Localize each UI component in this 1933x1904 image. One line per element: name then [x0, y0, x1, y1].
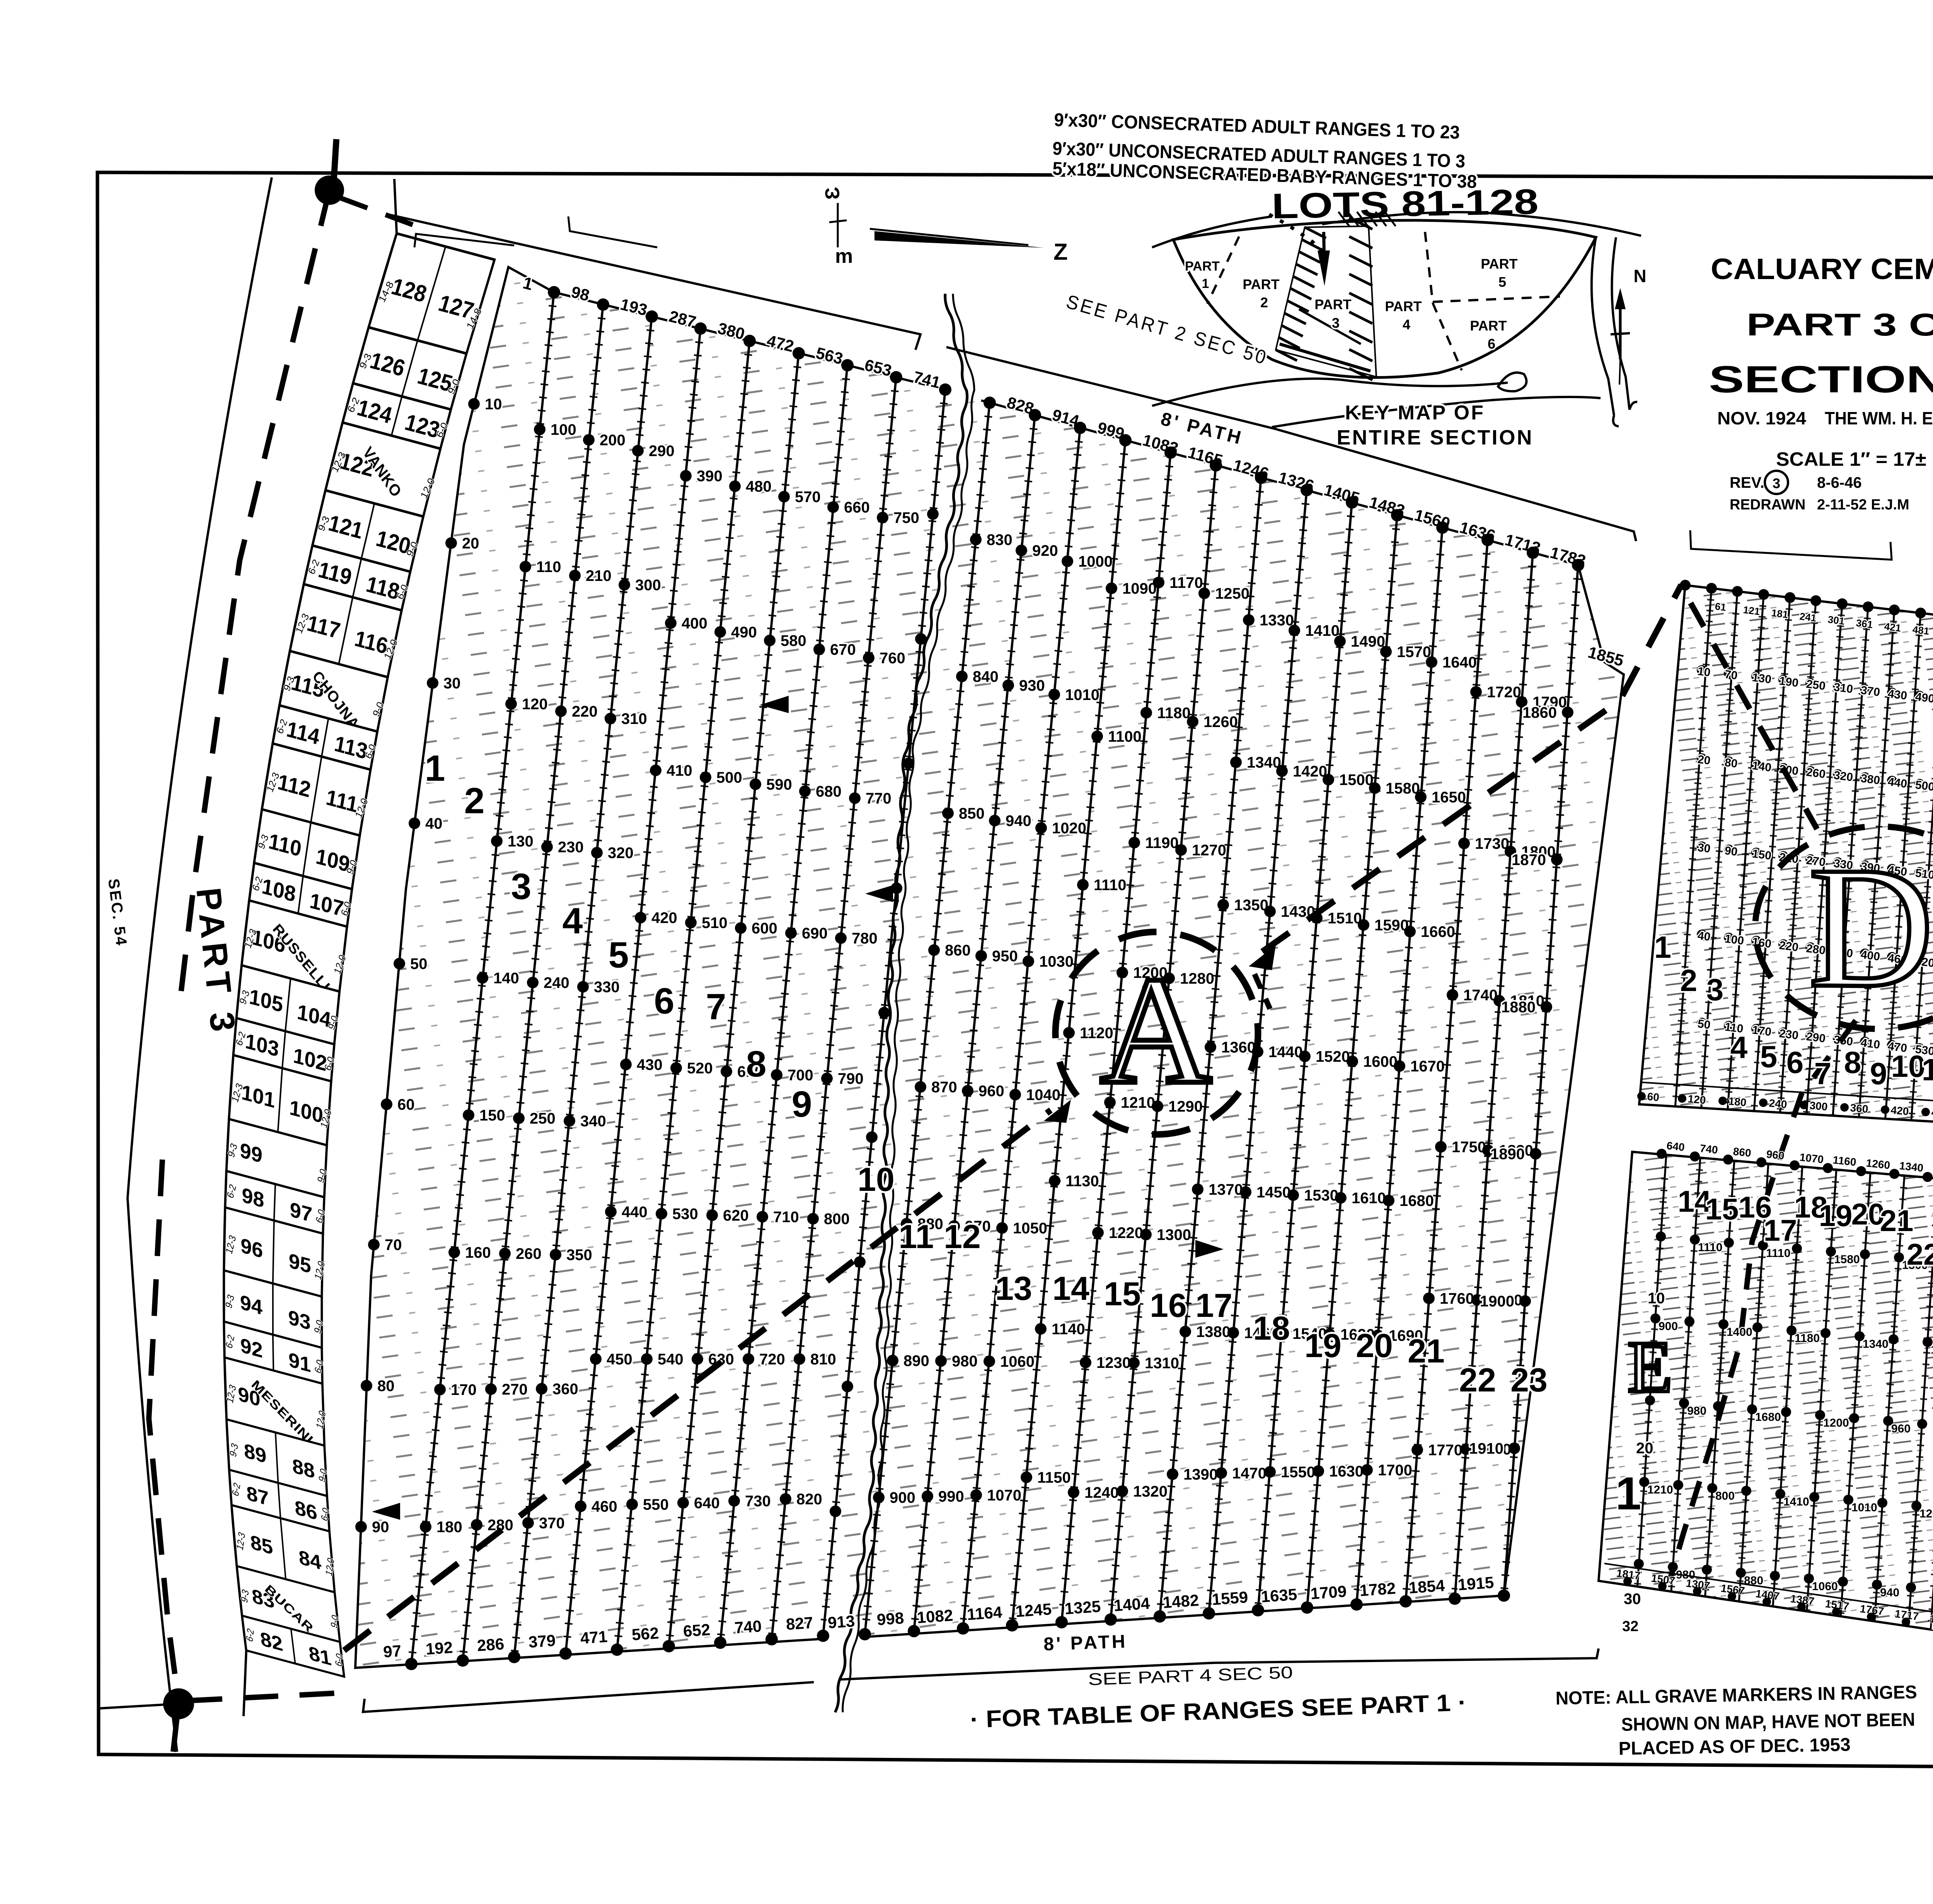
svg-text:11: 11 [1922, 1052, 1933, 1087]
svg-text:100: 100 [1724, 932, 1745, 947]
svg-text:30: 30 [1624, 1591, 1641, 1608]
svg-text:550: 550 [643, 1496, 669, 1513]
svg-text:5: 5 [609, 935, 629, 976]
svg-text:1210: 1210 [1647, 1483, 1673, 1496]
svg-text:REDRAWN: REDRAWN [1730, 497, 1805, 513]
svg-text:750: 750 [893, 509, 919, 526]
svg-text:420: 420 [1890, 1104, 1909, 1117]
svg-text:250: 250 [1805, 678, 1826, 693]
svg-text:520: 520 [687, 1060, 713, 1077]
svg-text:250: 250 [530, 1110, 556, 1127]
svg-text:PART 3 OF: PART 3 OF [1747, 307, 1933, 342]
svg-text:300: 300 [635, 577, 661, 594]
svg-text:1060: 1060 [1000, 1353, 1035, 1370]
svg-text:8' PATH: 8' PATH [1043, 1631, 1128, 1655]
svg-text:980: 980 [1687, 1405, 1706, 1417]
svg-text:170: 170 [451, 1381, 477, 1398]
svg-text:620: 620 [723, 1207, 749, 1224]
svg-text:REV.: REV. [1730, 474, 1764, 491]
svg-text:361: 361 [1855, 617, 1873, 630]
svg-text:6: 6 [1488, 336, 1495, 352]
svg-text:1200: 1200 [1919, 1507, 1933, 1520]
svg-text:340: 340 [580, 1113, 606, 1130]
svg-text:670: 670 [830, 641, 856, 658]
svg-text:1782: 1782 [1359, 1579, 1396, 1599]
svg-text:20: 20 [1356, 1327, 1393, 1364]
svg-text:A: A [1100, 945, 1212, 1116]
svg-text:N: N [1633, 266, 1646, 286]
svg-text:50: 50 [1697, 1017, 1711, 1032]
svg-text:40: 40 [425, 815, 443, 832]
svg-text:1390: 1390 [1183, 1466, 1218, 1483]
svg-text:430: 430 [637, 1056, 663, 1073]
svg-text:1110: 1110 [1698, 1241, 1722, 1254]
svg-text:5: 5 [1760, 1039, 1778, 1074]
svg-text:19: 19 [1304, 1327, 1342, 1364]
svg-text:1: 1 [425, 748, 445, 789]
svg-text:1: 1 [1616, 1468, 1642, 1519]
svg-text:1270: 1270 [1192, 842, 1226, 859]
svg-text:1482: 1482 [1162, 1591, 1199, 1611]
svg-text:1520: 1520 [1316, 1048, 1350, 1065]
svg-text:1070: 1070 [987, 1487, 1021, 1504]
svg-text:5: 5 [1498, 274, 1506, 290]
svg-text:21: 21 [1880, 1204, 1914, 1238]
svg-text:1245: 1245 [1015, 1600, 1052, 1620]
svg-text:480: 480 [746, 478, 772, 495]
svg-text:286: 286 [476, 1635, 505, 1655]
svg-text:300: 300 [1809, 1099, 1828, 1113]
svg-text:1880: 1880 [1501, 999, 1536, 1016]
svg-text:260: 260 [1805, 766, 1826, 781]
svg-text:220: 220 [1778, 939, 1799, 954]
svg-text:1330: 1330 [1260, 612, 1294, 629]
svg-text:1550: 1550 [1281, 1464, 1315, 1481]
svg-text:1559: 1559 [1211, 1588, 1248, 1608]
svg-text:1600: 1600 [1363, 1053, 1398, 1070]
svg-text:1300: 1300 [1157, 1226, 1191, 1243]
svg-text:290: 290 [1805, 1030, 1826, 1045]
svg-text:15: 15 [1104, 1276, 1141, 1313]
svg-text:1070: 1070 [1799, 1151, 1824, 1165]
svg-text:1180: 1180 [1157, 705, 1191, 722]
svg-text:1570: 1570 [1397, 644, 1431, 661]
svg-text:1650: 1650 [1432, 789, 1466, 806]
svg-text:710: 710 [773, 1209, 799, 1226]
svg-text:16: 16 [1150, 1287, 1187, 1324]
svg-text:1854: 1854 [1408, 1576, 1445, 1597]
svg-text:940: 940 [1880, 1586, 1899, 1599]
svg-text:540: 540 [658, 1351, 684, 1368]
svg-text:220: 220 [572, 703, 598, 720]
svg-text:1170: 1170 [1169, 574, 1203, 591]
svg-text:150: 150 [479, 1107, 505, 1124]
svg-text:20: 20 [462, 535, 479, 552]
svg-text:21: 21 [1408, 1333, 1445, 1370]
svg-text:301: 301 [1827, 613, 1845, 627]
svg-text:7: 7 [1814, 1056, 1832, 1091]
svg-text:740: 740 [1699, 1142, 1718, 1156]
svg-text:2: 2 [464, 780, 485, 821]
svg-text:562: 562 [631, 1624, 659, 1644]
svg-text:1340: 1340 [1863, 1338, 1889, 1351]
svg-text:23: 23 [1510, 1362, 1548, 1399]
svg-text:8-6-46: 8-6-46 [1817, 474, 1862, 491]
svg-text:15: 15 [1705, 1192, 1739, 1226]
svg-text:1060: 1060 [1812, 1580, 1838, 1593]
svg-text:80: 80 [377, 1378, 395, 1395]
svg-text:4: 4 [563, 901, 583, 942]
svg-text:6: 6 [1786, 1045, 1804, 1080]
svg-text:720: 720 [759, 1351, 785, 1368]
svg-text:580: 580 [781, 632, 806, 649]
svg-text:998: 998 [876, 1609, 904, 1629]
svg-text:740: 740 [734, 1617, 762, 1637]
svg-text:241: 241 [1799, 610, 1817, 624]
svg-text:640: 640 [1666, 1139, 1685, 1153]
svg-text:1660: 1660 [1421, 923, 1455, 940]
svg-text:260: 260 [516, 1245, 542, 1262]
svg-text:350: 350 [566, 1247, 592, 1264]
svg-text:6: 6 [654, 981, 675, 1022]
svg-text:CALUARY CEMETERY: CALUARY CEMETERY [1711, 253, 1933, 286]
svg-text:1325: 1325 [1064, 1597, 1101, 1618]
svg-text:2-11-52 E.J.M: 2-11-52 E.J.M [1817, 497, 1909, 513]
svg-text:1420: 1420 [1293, 763, 1327, 780]
svg-text:940: 940 [1006, 812, 1031, 829]
svg-text:1360: 1360 [1221, 1039, 1256, 1056]
svg-text:70: 70 [1724, 668, 1738, 682]
svg-text:1010: 1010 [1851, 1501, 1877, 1514]
svg-text:440: 440 [622, 1204, 648, 1221]
svg-text:1082: 1082 [916, 1606, 953, 1626]
svg-text:570: 570 [795, 489, 821, 506]
svg-text:1090: 1090 [1122, 580, 1157, 597]
svg-text:110: 110 [536, 559, 561, 576]
svg-text:800: 800 [1715, 1490, 1735, 1502]
svg-text:1510: 1510 [1328, 910, 1362, 927]
svg-text:PART: PART [1385, 298, 1422, 314]
svg-text:1530: 1530 [1304, 1187, 1338, 1204]
svg-text:9: 9 [792, 1084, 812, 1125]
svg-text:690: 690 [802, 925, 828, 942]
svg-text:1370: 1370 [1209, 1181, 1243, 1198]
svg-text:80: 80 [1724, 756, 1738, 770]
svg-text:410: 410 [1860, 1036, 1881, 1051]
svg-text:20: 20 [1697, 753, 1711, 767]
svg-text:130: 130 [1751, 671, 1772, 686]
svg-text:1640: 1640 [1442, 654, 1477, 671]
svg-text:481: 481 [1912, 623, 1930, 637]
svg-text:1000: 1000 [1078, 553, 1113, 570]
svg-text:PART: PART [1243, 276, 1279, 292]
svg-text:11: 11 [899, 1218, 934, 1255]
svg-text:8: 8 [1844, 1045, 1861, 1080]
svg-text:930: 930 [1019, 677, 1045, 694]
svg-text:370: 370 [539, 1515, 565, 1532]
svg-text:1410: 1410 [1783, 1495, 1809, 1508]
svg-text:510: 510 [702, 915, 728, 932]
svg-text:330: 330 [594, 979, 620, 996]
svg-text:240: 240 [544, 974, 569, 991]
svg-text:10: 10 [485, 396, 502, 413]
svg-text:1160: 1160 [1832, 1154, 1857, 1168]
svg-text:1404: 1404 [1113, 1594, 1151, 1614]
svg-text:1680: 1680 [1399, 1192, 1434, 1209]
svg-text:1670: 1670 [1410, 1058, 1445, 1075]
svg-text:860: 860 [945, 942, 971, 959]
svg-text:100: 100 [551, 421, 576, 438]
svg-text:1680: 1680 [1755, 1411, 1781, 1424]
svg-text:1760: 1760 [1440, 1290, 1474, 1307]
svg-text:1890: 1890 [1490, 1146, 1525, 1163]
svg-text:8: 8 [746, 1044, 767, 1085]
svg-text:730: 730 [745, 1493, 771, 1510]
svg-text:180: 180 [1728, 1095, 1747, 1109]
svg-text:1870: 1870 [1512, 852, 1546, 869]
svg-text:90: 90 [372, 1519, 389, 1536]
svg-text:1610: 1610 [1352, 1190, 1386, 1207]
svg-text:827: 827 [785, 1613, 813, 1633]
svg-text:660: 660 [844, 499, 870, 516]
svg-text:181: 181 [1771, 607, 1789, 620]
svg-text:230: 230 [1778, 1027, 1799, 1042]
svg-text:160: 160 [465, 1244, 491, 1261]
svg-text:960: 960 [978, 1083, 1004, 1100]
svg-text:PART: PART [1314, 296, 1351, 312]
svg-text:1750: 1750 [1452, 1139, 1486, 1156]
svg-text:440: 440 [1887, 775, 1908, 790]
svg-text:490: 490 [731, 624, 757, 641]
svg-text:1400: 1400 [1727, 1326, 1752, 1339]
svg-text:1340: 1340 [1899, 1160, 1924, 1174]
svg-text:121: 121 [1742, 604, 1761, 617]
svg-text:471: 471 [580, 1627, 608, 1647]
svg-text:1260: 1260 [1203, 714, 1238, 731]
svg-text:760: 760 [880, 650, 905, 667]
svg-text:790: 790 [838, 1070, 864, 1087]
svg-text:1200: 1200 [1823, 1417, 1849, 1429]
svg-text:190: 190 [1778, 674, 1799, 690]
svg-text:192: 192 [425, 1638, 453, 1658]
svg-text:m: m [835, 245, 853, 267]
svg-text:1410: 1410 [1305, 622, 1340, 639]
svg-text:640: 640 [694, 1495, 720, 1512]
svg-text:360: 360 [552, 1381, 578, 1398]
svg-text:1709: 1709 [1310, 1582, 1347, 1603]
svg-text:900: 900 [890, 1489, 915, 1506]
svg-text:1030: 1030 [1039, 953, 1074, 970]
svg-text:Ɛ: Ɛ [821, 186, 844, 201]
svg-text:1320: 1320 [1133, 1483, 1168, 1500]
svg-text:1190: 1190 [1145, 834, 1179, 852]
svg-text:30: 30 [1697, 841, 1711, 855]
svg-text:1110: 1110 [1766, 1247, 1790, 1260]
svg-text:420: 420 [651, 909, 677, 926]
svg-text:820: 820 [796, 1491, 822, 1508]
svg-text:20: 20 [1636, 1440, 1653, 1457]
svg-text:390: 390 [697, 468, 723, 485]
svg-text:18: 18 [1253, 1310, 1290, 1347]
svg-text:1260: 1260 [1865, 1157, 1890, 1171]
svg-text:2: 2 [1260, 295, 1268, 310]
svg-text:860: 860 [1732, 1145, 1752, 1159]
svg-text:1310: 1310 [1145, 1355, 1179, 1372]
svg-text:1380: 1380 [1196, 1323, 1231, 1340]
svg-text:380: 380 [1860, 772, 1881, 787]
svg-text:32: 32 [1622, 1618, 1638, 1635]
svg-text:1590: 1590 [1374, 917, 1409, 934]
svg-text:460: 460 [591, 1498, 617, 1515]
svg-text:990: 990 [938, 1488, 964, 1505]
svg-text:140: 140 [493, 970, 519, 987]
svg-text:652: 652 [682, 1620, 711, 1640]
svg-text:50: 50 [410, 955, 428, 972]
svg-text:160: 160 [1751, 935, 1772, 950]
svg-text:1635: 1635 [1260, 1585, 1297, 1606]
svg-text:210: 210 [586, 567, 612, 584]
svg-text:400: 400 [682, 615, 707, 632]
svg-text:D: D [1809, 831, 1933, 1024]
svg-text:130: 130 [508, 833, 534, 850]
svg-text:850: 850 [959, 805, 985, 822]
svg-text:1: 1 [1202, 276, 1209, 291]
svg-text:430: 430 [1887, 687, 1908, 702]
svg-text:60: 60 [1647, 1090, 1660, 1104]
svg-text:1130: 1130 [1065, 1173, 1099, 1190]
svg-text:1860: 1860 [1522, 704, 1557, 721]
svg-text:13: 13 [995, 1270, 1032, 1307]
svg-text:1380: 1380 [1931, 1344, 1933, 1356]
svg-text:500: 500 [1914, 778, 1933, 794]
svg-text:30: 30 [443, 675, 461, 692]
svg-text:1164: 1164 [966, 1603, 1003, 1623]
svg-text:960: 960 [1891, 1422, 1911, 1435]
svg-text:E: E [1628, 1327, 1672, 1408]
svg-text:17: 17 [1195, 1287, 1232, 1324]
svg-text:ENTIRE SECTION: ENTIRE SECTION [1336, 426, 1533, 449]
svg-text:370: 370 [1860, 684, 1881, 699]
svg-text:980: 980 [952, 1353, 978, 1370]
svg-text:1915: 1915 [1457, 1573, 1494, 1594]
svg-text:1140: 1140 [1052, 1321, 1085, 1338]
svg-text:SCALE 1″ = 17± FT.: SCALE 1″ = 17± FT. [1776, 448, 1933, 470]
svg-text:PART: PART [1185, 259, 1220, 274]
svg-text:THE WM. H. EVERS ENG. CO.: THE WM. H. EVERS ENG. CO. [1825, 408, 1933, 428]
svg-text:960: 960 [1766, 1148, 1785, 1162]
svg-text:4: 4 [1730, 1030, 1748, 1064]
svg-text:1020: 1020 [1052, 820, 1086, 837]
svg-text:379: 379 [528, 1631, 556, 1651]
svg-text:1220: 1220 [1109, 1224, 1143, 1242]
svg-text:410: 410 [666, 762, 692, 779]
svg-text:1: 1 [1654, 930, 1672, 964]
svg-text:3: 3 [1332, 315, 1340, 331]
svg-text:22: 22 [1907, 1237, 1933, 1271]
svg-text:270: 270 [502, 1381, 528, 1398]
svg-text:PART: PART [1470, 318, 1507, 334]
svg-text:1580: 1580 [1834, 1253, 1860, 1266]
svg-text:310: 310 [1833, 681, 1854, 696]
svg-text:310: 310 [621, 710, 647, 727]
svg-text:2: 2 [1680, 963, 1698, 998]
svg-text:1580: 1580 [1386, 780, 1420, 797]
svg-text:500: 500 [716, 769, 742, 786]
svg-text:1040: 1040 [1026, 1087, 1060, 1104]
svg-text:61: 61 [1714, 600, 1727, 613]
svg-text:1500: 1500 [1339, 771, 1374, 789]
svg-text:1340: 1340 [1247, 754, 1281, 771]
svg-text:KEY MAP OF: KEY MAP OF [1345, 402, 1485, 424]
svg-text:840: 840 [973, 668, 999, 685]
svg-text:1180: 1180 [1795, 1332, 1820, 1345]
svg-text:1250: 1250 [1215, 585, 1249, 602]
svg-text:490: 490 [1914, 690, 1933, 705]
svg-text:12: 12 [944, 1218, 981, 1255]
svg-text:3: 3 [1706, 972, 1724, 1007]
svg-text:360: 360 [1849, 1102, 1868, 1115]
svg-text:320: 320 [1833, 769, 1854, 784]
svg-text:1050: 1050 [1013, 1220, 1047, 1237]
svg-text:SECTION 50: SECTION 50 [1709, 358, 1933, 400]
svg-text:600: 600 [752, 920, 777, 937]
svg-text:150: 150 [1751, 847, 1772, 862]
svg-text:120: 120 [1687, 1093, 1706, 1106]
svg-text:Z: Z [1053, 239, 1068, 265]
svg-text:1110: 1110 [1094, 877, 1127, 894]
svg-text:170: 170 [1751, 1024, 1772, 1039]
svg-text:1100: 1100 [1108, 728, 1142, 745]
svg-text:770: 770 [866, 790, 891, 807]
svg-text:450: 450 [607, 1351, 632, 1368]
svg-text:140: 140 [1751, 759, 1772, 774]
svg-text:10: 10 [1697, 665, 1711, 679]
svg-text:9: 9 [1870, 1056, 1887, 1091]
svg-text:1740: 1740 [1463, 987, 1498, 1004]
svg-text:120: 120 [522, 696, 548, 713]
svg-text:10: 10 [857, 1161, 895, 1198]
svg-text:230: 230 [558, 839, 584, 856]
svg-text:700: 700 [788, 1067, 813, 1084]
svg-text:200: 200 [600, 432, 626, 449]
svg-text:590: 590 [766, 776, 792, 793]
svg-text:14: 14 [1052, 1270, 1089, 1307]
svg-text:1490: 1490 [1351, 633, 1385, 650]
svg-text:780: 780 [852, 930, 878, 947]
svg-text:240: 240 [1768, 1097, 1787, 1110]
svg-text:1440: 1440 [1268, 1044, 1303, 1061]
svg-text:810: 810 [810, 1351, 836, 1368]
svg-text:3: 3 [1773, 475, 1780, 491]
svg-text:1700: 1700 [1378, 1462, 1412, 1479]
svg-text:1720: 1720 [1487, 684, 1521, 701]
svg-text:1770: 1770 [1428, 1442, 1463, 1459]
svg-text:800: 800 [824, 1211, 850, 1228]
svg-text:913: 913 [827, 1612, 855, 1632]
svg-text:530: 530 [672, 1206, 698, 1223]
svg-text:1450: 1450 [1256, 1184, 1291, 1201]
svg-text:290: 290 [649, 443, 675, 460]
svg-text:19: 19 [1819, 1199, 1853, 1233]
svg-text:1240: 1240 [1084, 1484, 1119, 1501]
svg-text:4: 4 [1403, 317, 1410, 332]
svg-text:70: 70 [385, 1236, 402, 1253]
svg-text:1630: 1630 [1329, 1463, 1364, 1480]
svg-text:3: 3 [511, 866, 532, 907]
svg-text:22: 22 [1459, 1362, 1496, 1399]
svg-text:1150: 1150 [1037, 1469, 1071, 1486]
svg-text:NOV. 1924: NOV. 1924 [1717, 408, 1806, 428]
